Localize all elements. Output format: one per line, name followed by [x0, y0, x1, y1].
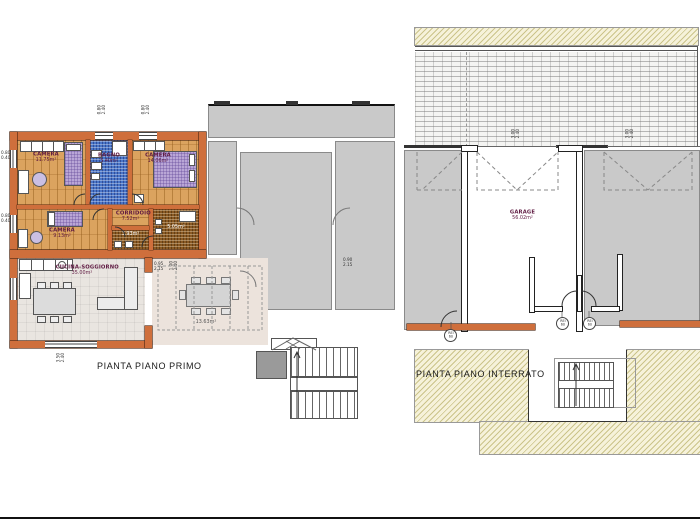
toilet	[155, 228, 162, 234]
room-label-cucina: CUCINA-SOGGIORNO 35.00m²	[56, 264, 109, 276]
wall-cucina-right-b	[145, 326, 152, 348]
room-label-camera-2: CAMERA 14.06m²	[143, 152, 173, 164]
room-label-bagno-3: 5.05m²	[163, 224, 190, 230]
floorplan-sheet: CAMERA 11.75m² BAGNO 5.40m² CAMERA 14.06…	[0, 0, 700, 525]
pillow	[189, 170, 195, 182]
wall-mid	[10, 250, 206, 258]
chair	[206, 277, 216, 284]
vestibule-wall	[534, 306, 563, 312]
fire-door-badge: REI60	[583, 317, 596, 330]
garage-wall-left	[461, 145, 468, 332]
nightstand	[134, 194, 144, 203]
pillow	[66, 144, 81, 151]
sink	[114, 241, 122, 248]
rug	[32, 172, 47, 187]
garage-pier	[461, 145, 478, 152]
pillow	[189, 154, 195, 166]
window	[10, 150, 17, 168]
dim-window: 0.800.40	[1, 214, 10, 223]
chair	[63, 282, 72, 289]
garage-pier	[558, 145, 583, 152]
ground-lower-bottom	[480, 422, 700, 454]
chair	[232, 290, 239, 300]
garage-door-threshold	[477, 146, 557, 147]
outdoor-table	[186, 284, 231, 307]
driveway-paving	[415, 52, 698, 147]
dim-door: 0.952.15	[154, 262, 163, 271]
stair-flight-lower	[290, 391, 358, 419]
chair	[221, 277, 231, 284]
chair	[221, 308, 231, 315]
garage-door-threshold	[607, 146, 700, 147]
ground-lower-right	[627, 350, 700, 422]
neighbor-room	[208, 141, 237, 255]
bidet	[91, 173, 100, 180]
room-label-bagno-1: BAGNO 5.40m²	[95, 152, 124, 164]
room-label-garage: GARAGE 56.02m²	[502, 209, 543, 221]
toilet	[125, 241, 133, 248]
room-label-camera-1: CAMERA 11.75m²	[31, 151, 61, 163]
kitchen-counter	[19, 273, 31, 299]
pit-outline	[528, 421, 627, 422]
caption-piano-primo: PIANTA PIANO PRIMO	[97, 361, 202, 371]
stair-mid-landing	[290, 377, 358, 391]
chair	[37, 282, 46, 289]
vestibule-wall	[617, 254, 623, 311]
neighbor-unit-top-band	[208, 104, 395, 138]
sink	[155, 219, 162, 225]
property-line	[466, 52, 468, 147]
window	[139, 132, 157, 140]
dim-window: 0.802.40	[141, 105, 150, 115]
stair-flight-upper	[290, 347, 358, 377]
chair	[63, 316, 72, 323]
dining-table	[33, 288, 76, 315]
chair	[191, 277, 201, 284]
ground-strip-top	[415, 28, 698, 45]
room-label-camera-3: CAMERA 9.13m²	[49, 227, 76, 239]
dim-window: 0.800.40	[1, 151, 10, 160]
fire-door-badge: REI60	[556, 317, 569, 330]
dim-door: 1.002.40	[169, 261, 178, 271]
chair	[191, 308, 201, 315]
desk	[18, 170, 29, 194]
terrace-area-label: 13.63m²	[191, 319, 221, 325]
dim-garage-door: 3.002.40	[511, 129, 520, 139]
wall-right	[199, 132, 206, 258]
neighbor-garage-left	[404, 150, 462, 330]
room-label-corridoio: CORRIDOIO 7.52m²	[116, 210, 145, 222]
vestibule-wall	[577, 275, 582, 312]
retaining-wall-lines	[415, 46, 698, 51]
chair	[50, 282, 59, 289]
basement-ext-wall	[407, 324, 535, 330]
wardrobe	[133, 141, 165, 151]
pillow	[48, 212, 55, 226]
chair	[50, 316, 59, 323]
chair	[37, 316, 46, 323]
chair	[179, 290, 186, 300]
neighbor-window-tick	[352, 101, 370, 105]
basement-ext-wall	[620, 321, 700, 327]
neighbor-window-tick	[286, 101, 298, 105]
stair-landing	[256, 351, 287, 379]
window-slider	[45, 341, 97, 348]
sofa	[124, 267, 138, 310]
partition	[128, 140, 132, 208]
neighbor-window-tick	[214, 101, 230, 105]
desk	[18, 229, 28, 248]
neighbor-room	[335, 141, 395, 310]
dim-door: 0.902.15	[343, 258, 352, 267]
wall-cucina-right-a	[145, 258, 152, 272]
caption-piano-interrato: PIANTA PIANO INTERRATO	[416, 369, 545, 379]
basement-stair-landing	[558, 380, 614, 389]
rug	[30, 231, 43, 244]
window	[10, 215, 17, 233]
chair	[206, 308, 216, 315]
dim-garage-door: 3.002.40	[625, 129, 634, 139]
bathtub	[179, 211, 196, 222]
room-label-bagno-2: 3.93m²	[117, 231, 145, 237]
neighbor-garage-right	[584, 150, 700, 326]
dim-window: 3.502.40	[56, 353, 65, 363]
ground-lower-left	[415, 350, 528, 422]
pit-outline	[528, 350, 529, 422]
plan-edge-line	[697, 46, 698, 147]
window	[95, 132, 113, 140]
window	[10, 278, 17, 300]
partition	[86, 140, 90, 208]
dim-window: 0.802.40	[97, 105, 106, 115]
vestibule-wall	[529, 257, 535, 313]
vestibule-wall	[591, 306, 620, 312]
sheet-bottom-rule	[0, 517, 700, 519]
fire-door-badge: REI60	[444, 329, 457, 342]
